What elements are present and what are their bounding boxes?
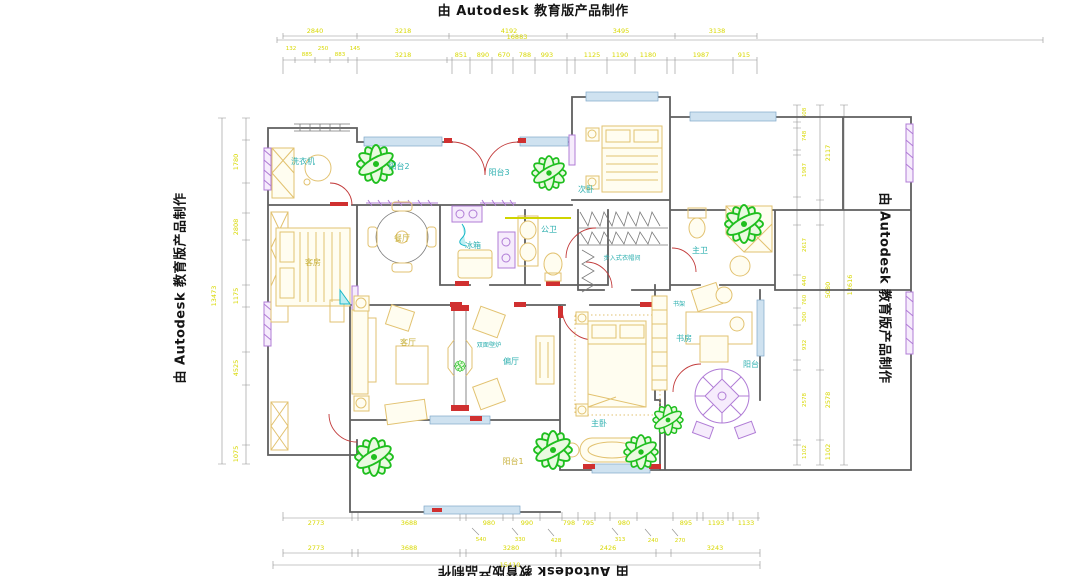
dim-bot-a2: 980 (483, 519, 495, 527)
room-label-balcony2: 阳台2 (388, 161, 409, 171)
dim-top-t1-3: 3495 (613, 27, 630, 35)
dim-bot-s4: 240 (648, 538, 659, 544)
dim-left-total: 13473 (210, 286, 218, 307)
floorplan-drawing: 16883 2840 3218 4192 3495 3138 132 885 2… (0, 0, 1074, 576)
room-label-balcony1: 阳台1 (502, 456, 523, 466)
dim-top-t1-0: 2840 (307, 27, 324, 35)
dim-bot-s1: 330 (515, 537, 526, 543)
dim-top-t2-7: 1190 (612, 51, 629, 59)
dim-top-t2-2: 890 (477, 51, 489, 59)
dim-left-4: 1075 (232, 446, 240, 463)
dim-top-t2-10: 915 (738, 51, 750, 59)
dim-right-i3: 2617 (802, 238, 808, 252)
dimension-chain-top: 16883 2840 3218 4192 3495 3138 132 885 2… (277, 27, 1043, 74)
room-label-balcony3: 阳台3 (488, 167, 509, 177)
room-label-walk-in-closet: 步入式衣帽间 (603, 254, 640, 262)
dim-left-1: 2808 (232, 219, 240, 236)
guest-room-furniture (271, 212, 358, 450)
sofa (352, 310, 368, 394)
window-secondary-bedroom (586, 92, 658, 101)
dim-right-o2: 2578 (824, 392, 832, 409)
room-label-laundry: 洗衣机 (291, 156, 315, 166)
dim-right-o3: 1102 (824, 444, 832, 461)
mb-basin (730, 256, 750, 276)
autodesk-watermark-bottom: 由 Autodesk 教育版产品制作 (438, 563, 629, 576)
dim-right-i9: 1102 (802, 445, 808, 459)
room-label-master-bath: 主卫 (692, 245, 708, 255)
basin-2 (520, 243, 536, 261)
dim-top-t1-2: 4192 (501, 27, 518, 35)
label-fireplace: 双面壁炉 (477, 341, 502, 349)
dimension-chain-left: 1780 2808 1175 4525 1075 13473 (210, 118, 250, 464)
autodesk-watermark-right: 由 Autodesk 教育版产品制作 (877, 192, 896, 383)
room-label-master-bedroom: 主卧 (591, 418, 607, 428)
lounge-chair-1 (473, 306, 506, 337)
dim-top-t1-1: 3218 (395, 27, 412, 35)
room-label-balcony4: 阳台 (743, 359, 759, 369)
dim-top-sub-2: 250 (318, 46, 329, 52)
window-study (757, 300, 764, 356)
room-label-dining: 餐厅 (394, 234, 410, 243)
dimension-chain-bottom: 2773 3688 980 990 798 795 980 895 1193 1… (273, 512, 760, 569)
window-ext-corridor (690, 112, 776, 121)
dim-right-i6: 300 (802, 311, 808, 322)
balcony4-furniture (692, 369, 755, 439)
dim-bot-a1: 3688 (401, 519, 418, 527)
label-bookshelf: 书架 (673, 300, 685, 308)
dim-top-sub-4: 145 (350, 46, 361, 52)
plant-balcony1-left (355, 438, 394, 477)
dim-top-t2-6: 1125 (584, 51, 601, 59)
room-label-study: 书房 (676, 333, 692, 343)
walk-in-closet-hatch (580, 212, 660, 292)
dimension-chain-right: 608 748 1987 2617 440 760 300 932 2578 1… (793, 105, 854, 465)
dim-right-o0: 2117 (824, 145, 832, 162)
laundry-room-fixtures (272, 148, 331, 198)
plant-balcony1-right (534, 431, 573, 470)
lounge-chair-2 (473, 378, 506, 409)
kitchen-fixtures (452, 206, 515, 278)
dim-top-t1-4: 3138 (709, 27, 726, 35)
room-label-guest-room: 客房 (305, 257, 321, 267)
dim-right-total: 12616 (846, 275, 854, 296)
coffee-table (396, 346, 428, 384)
room-label-lounge: 偏厅 (503, 356, 519, 366)
dim-left-3: 4525 (232, 360, 240, 377)
cad-floorplan-canvas: 由 Autodesk 教育版产品制作 由 Autodesk 教育版产品制作 由 … (0, 0, 1074, 576)
dim-top-sub-0: 132 (286, 46, 297, 52)
dim-bot-s5: 270 (675, 538, 686, 544)
dim-right-i5: 760 (802, 294, 808, 305)
plant-balcony4 (653, 405, 684, 436)
dim-top-sub-3: 883 (335, 52, 346, 58)
dim-top-t2-5: 993 (541, 51, 553, 59)
toilet-bowl (544, 253, 562, 275)
dim-bot-a7: 895 (680, 519, 692, 527)
dim-bot-a9: 1133 (738, 519, 755, 527)
dim-top-sub-1: 885 (302, 52, 313, 58)
tv-cabinet (536, 336, 554, 384)
dim-bot-b2: 3280 (503, 544, 520, 552)
dim-bot-a5: 795 (582, 519, 594, 527)
dim-bot-b4: 3243 (707, 544, 724, 552)
basin-1 (520, 221, 536, 239)
dim-bot-a6: 980 (618, 519, 630, 527)
dim-right-i2: 1987 (802, 163, 808, 177)
fireplace-column (448, 305, 472, 411)
dim-right-i1: 748 (802, 130, 808, 141)
living-room-furniture (352, 296, 428, 425)
dim-top-t2-0: 3218 (395, 51, 412, 59)
room-label-public-bath: 公卫 (541, 225, 557, 234)
dim-bot-s2: 428 (551, 538, 562, 544)
dim-left-0: 1780 (232, 154, 240, 171)
desk-lamp (730, 317, 744, 331)
desk-chair-slot (700, 336, 728, 362)
mb-toilet-bowl (689, 218, 705, 238)
dim-right-i4: 440 (802, 275, 808, 286)
secondary-bedroom-furniture (586, 126, 662, 192)
dim-bot-b1: 3688 (401, 544, 418, 552)
plant-balcony3 (532, 156, 567, 191)
armchair (385, 305, 414, 331)
dim-bot-a4: 798 (563, 519, 575, 527)
refrigerator (458, 250, 492, 278)
dim-top-t2-4: 788 (519, 51, 531, 59)
dim-right-i7: 932 (802, 340, 808, 351)
label-fridge: 冰箱 (465, 240, 481, 250)
dim-right-i8: 2578 (802, 393, 808, 407)
washing-machine (272, 148, 294, 198)
dim-bot-b3: 2426 (600, 544, 617, 552)
dim-bot-a0: 2773 (308, 519, 325, 527)
dim-bot-s0: 540 (476, 537, 487, 543)
room-label-secondary-bedroom: 次卧 (578, 184, 594, 194)
dim-bot-b0: 2773 (308, 544, 325, 552)
autodesk-watermark-top: 由 Autodesk 教育版产品制作 (438, 0, 629, 19)
dim-left-2: 1175 (232, 288, 240, 305)
dim-top-t2-9: 1987 (693, 51, 710, 59)
dim-top-t2-8: 1180 (640, 51, 657, 59)
dim-top-t2-3: 670 (498, 51, 510, 59)
guest-bed (276, 228, 350, 306)
dim-bot-a8: 1193 (708, 519, 725, 527)
dim-top-t2-1: 851 (455, 51, 467, 59)
room-label-living: 客厅 (400, 337, 416, 347)
master-bed (588, 321, 646, 407)
autodesk-watermark-left: 由 Autodesk 教育版产品制作 (170, 192, 189, 383)
stove (498, 232, 515, 268)
secondary-bed (602, 126, 662, 192)
dim-bot-s3: 313 (615, 537, 626, 543)
window-balcony3 (520, 137, 568, 146)
dim-bot-a3: 990 (521, 519, 533, 527)
